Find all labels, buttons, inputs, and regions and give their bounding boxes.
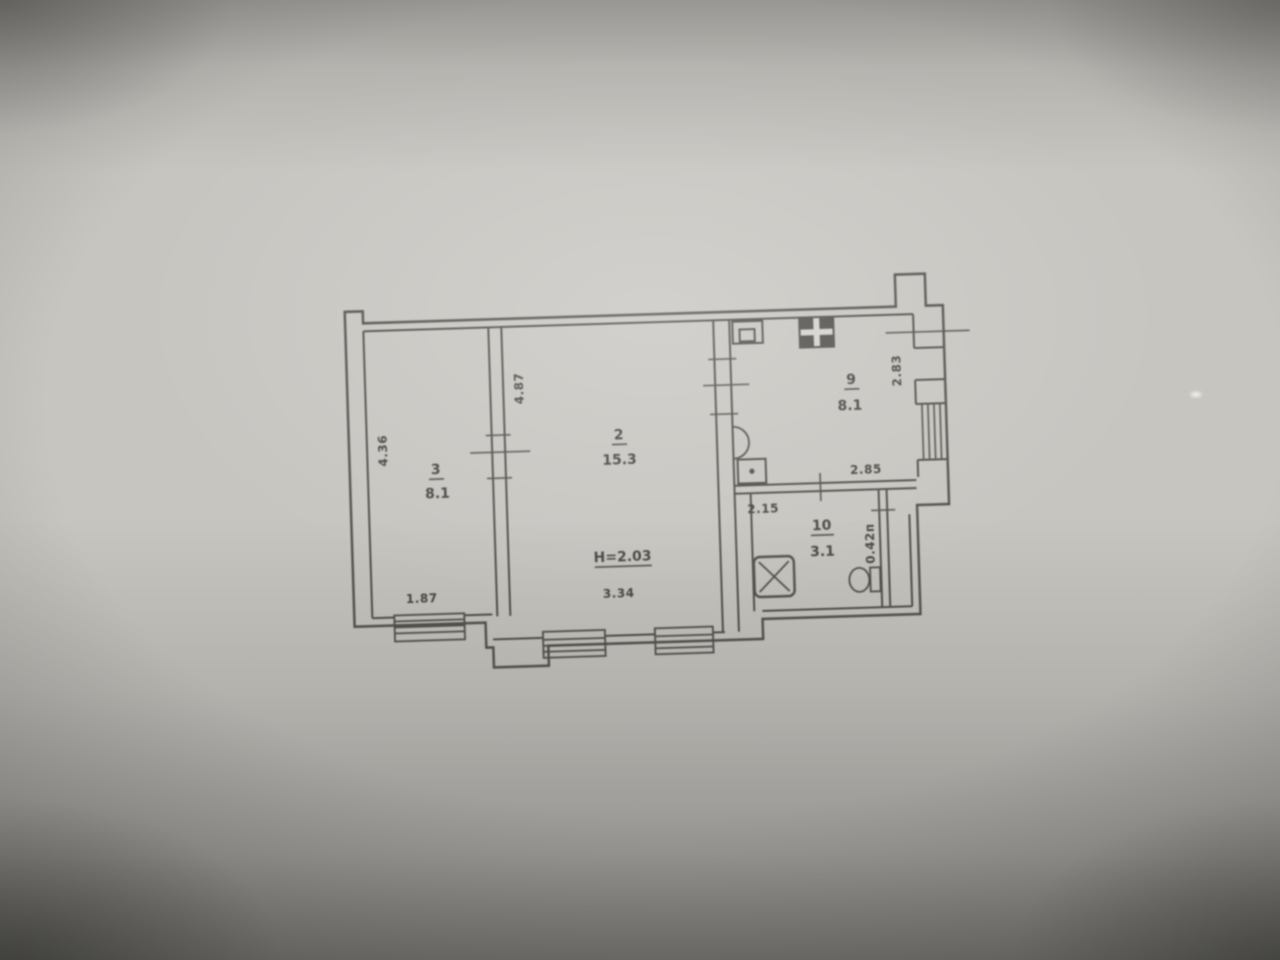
room2-number-label: 2 bbox=[614, 427, 624, 443]
room9-number-label: 9 bbox=[846, 372, 856, 388]
window-right-hatch bbox=[922, 403, 942, 460]
dim-room9-depth: 2.83 bbox=[889, 355, 904, 387]
floor-plan-drawing: 3 8.1 2 15.3 9 8.1 10 3.1 H=2.03 1.87 3.… bbox=[332, 260, 995, 690]
window-room3 bbox=[394, 613, 465, 641]
dim-room2-depth: 4.87 bbox=[512, 372, 527, 404]
inner-walls bbox=[363, 313, 953, 643]
room10-number-label: 10 bbox=[812, 518, 832, 535]
dim-room3-depth: 4.36 bbox=[376, 435, 391, 467]
shower-symbol bbox=[754, 556, 795, 597]
dim-room3-window: 1.87 bbox=[406, 591, 438, 606]
cabinet-symbol bbox=[738, 459, 767, 484]
room2-area-label: 15.3 bbox=[602, 452, 637, 469]
stove-symbol bbox=[799, 317, 834, 348]
sink-symbol bbox=[732, 321, 763, 344]
room3-number-label: 3 bbox=[431, 462, 441, 478]
room3-area-label: 8.1 bbox=[425, 486, 450, 503]
room10-area-label: 3.1 bbox=[810, 544, 835, 561]
ceiling-height-label: H=2.03 bbox=[593, 548, 651, 566]
dim-hall-width: 2.15 bbox=[747, 501, 779, 516]
dim-room9-width: 2.85 bbox=[850, 462, 882, 477]
dim-niche-width: 0.42п bbox=[863, 523, 878, 564]
floorplan-photo: 3 8.1 2 15.3 9 8.1 10 3.1 H=2.03 1.87 3.… bbox=[0, 0, 1280, 960]
room9-area-label: 8.1 bbox=[837, 398, 862, 415]
photo-bright-speck bbox=[1188, 390, 1204, 399]
toilet-symbol bbox=[849, 567, 881, 592]
door-arc bbox=[733, 426, 750, 458]
dim-room2-window: 3.34 bbox=[603, 586, 635, 601]
